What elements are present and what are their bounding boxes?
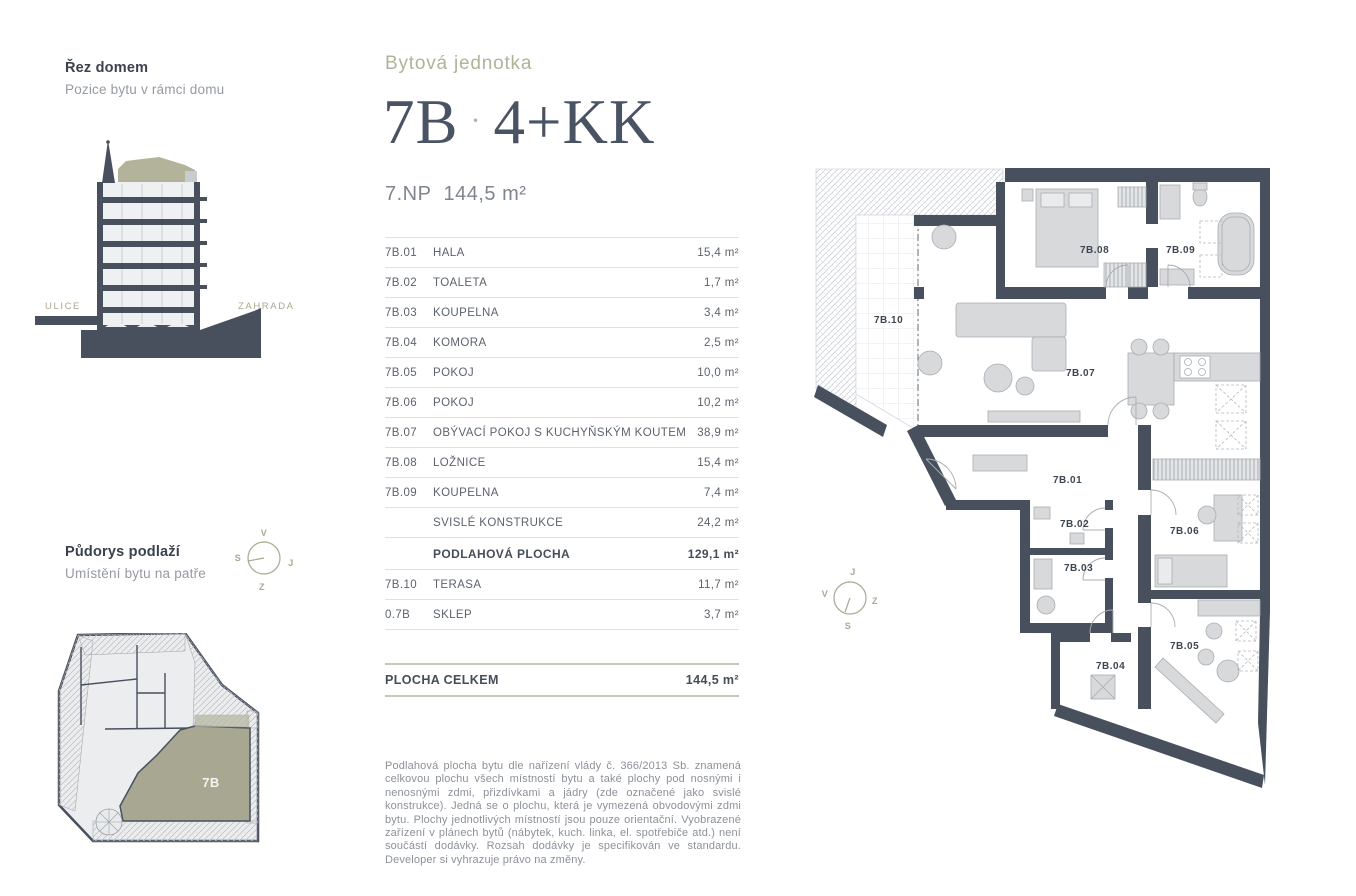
floor-panel-title: Půdorys podlaží [65,544,180,560]
room-name: SKLEP [433,609,704,621]
table-row: 7B.02TOALETA1,7 m² [385,268,739,298]
room-code: 7B.07 [385,427,433,439]
room-code: 7B.10 [385,579,433,591]
table-row: 7B.08LOŽNICE15,4 m² [385,448,739,478]
room-code: 7B.08 [385,457,433,469]
room-code: 7B.04 [385,337,433,349]
table-row: 7B.06POKOJ10,2 m² [385,388,739,418]
room-name: KOUPELNA [433,307,704,319]
label-bathroom2: 7B.09 [1166,245,1195,256]
room-code: 7B.06 [385,397,433,409]
room-name: HALA [433,247,697,259]
table-row: SVISLÉ KONSTRUKCE24,2 m² [385,508,739,538]
armchair [1217,660,1239,682]
plan-compass-left: V [822,589,829,599]
room-name: SVISLÉ KONSTRUKCE [433,517,697,529]
room-area: 3,4 m² [704,307,739,319]
floor-location-plan: 7B [45,633,275,868]
label-hall: 7B.01 [1053,475,1082,486]
hall-cabinet [973,455,1027,471]
bath-vanity [1160,185,1180,219]
room-area: 38,9 m² [697,427,739,439]
room-name: TERASA [433,579,698,591]
spire [102,140,115,183]
floor-panel-subtitle: Umístění bytu na patře [65,566,206,581]
section-panel-subtitle: Pozice bytu v rámci domu [65,82,224,97]
total-area: 144,5 m² [686,673,739,687]
room-name: TOALETA [433,277,704,289]
label-bathroom1: 7B.03 [1064,563,1093,574]
room-code: 7B.05 [385,367,433,379]
room-code: 7B.09 [385,487,433,499]
floor-compass: V S J Z [230,524,302,598]
unit-subheader: 7.NP144,5 m² [385,183,526,206]
room-area: 7,4 m² [704,487,739,499]
stove [1180,356,1210,378]
table-row: 7B.03KOUPELNA3,4 m² [385,298,739,328]
label-storage: 7B.04 [1096,661,1125,672]
compass-bottom-label: Z [259,582,265,592]
table-row: 7B.05POKOJ10,0 m² [385,358,739,388]
room-name: OBÝVACÍ POKOJ S KUCHYŇSKÝM KOUTEM [433,427,697,439]
armchair [932,225,956,249]
room-area: 10,2 m² [697,397,739,409]
compass-top-label: V [261,528,268,538]
room-name: KOUPELNA [433,487,704,499]
room-area: 2,5 m² [704,337,739,349]
room-name: POKOJ [433,397,697,409]
mini-plan-unit-label: 7B [202,775,220,790]
main-floor-plan: 7B.10 7B.08 7B.09 7B.07 7B.01 7B.02 7B.0… [808,163,1300,888]
room-area: 15,4 m² [697,457,739,469]
label-room2: 7B.06 [1170,526,1199,537]
bath-sink [1034,559,1052,589]
room-area: 24,2 m² [697,517,739,529]
table-row: 0.7BSKLEP3,7 m² [385,600,739,630]
total-row: PLOCHA CELKEM 144,5 m² [385,663,739,697]
sideboard [988,411,1080,422]
sofa [956,303,1066,337]
unit-eyebrow: Bytová jednotka [385,53,532,75]
armchair [918,351,942,375]
label-bedroom: 7B.08 [1080,245,1109,256]
toilet [1193,188,1207,206]
label-toilet: 7B.02 [1060,519,1089,530]
wc-sink [1034,507,1050,519]
shelf [1198,600,1260,616]
table-row: 7B.01HALA15,4 m² [385,237,739,268]
unit-floor: 7.NP [385,183,431,205]
built-in-wardrobe [1153,459,1260,480]
room-code: 7B.01 [385,247,433,259]
street-label: ULICE [45,301,81,312]
label-room1: 7B.05 [1170,641,1199,652]
total-label: PLOCHA CELKEM [385,673,499,687]
plan-compass-top: J [850,567,856,577]
plan-compass-right: Z [872,596,878,606]
building-section-drawing: ULICE ZAHRADA [30,140,315,375]
unit-id: 7B [383,87,459,157]
table-row: PODLAHOVÁ PLOCHA129,1 m² [385,538,739,570]
room-area: 11,7 m² [698,579,739,591]
table-row: 7B.10TERASA11,7 m² [385,570,739,600]
table-row: 7B.04KOMORA2,5 m² [385,328,739,358]
room-code: 7B.03 [385,307,433,319]
compass-left-label: S [235,553,242,563]
room-code: 0.7B [385,609,433,621]
unit-area: 144,5 m² [443,183,526,205]
page: Řez domem Pozice bytu v rámci domu [0,0,1356,896]
unit-title: 7B·4+KK [383,86,656,159]
room-area: 10,0 m² [697,367,739,379]
desk [1214,495,1242,541]
disclaimer-text: Podlahová plocha bytu dle nařízení vlády… [385,760,741,867]
rooms-table: 7B.01HALA15,4 m²7B.02TOALETA1,7 m²7B.03K… [385,237,739,630]
room-name: POKOJ [433,367,697,379]
room-area: 1,7 m² [704,277,739,289]
table-row: 7B.07OBÝVACÍ POKOJ S KUCHYŇSKÝM KOUTEM38… [385,418,739,448]
title-dot: · [471,104,482,137]
wardrobe [1118,187,1146,207]
plan-compass: J V Z S [822,567,878,631]
garden-label: ZAHRADA [238,301,295,312]
room-area: 3,7 m² [704,609,739,621]
room-area: 15,4 m² [697,247,739,259]
room-name: PODLAHOVÁ PLOCHA [433,547,688,561]
section-building [97,140,207,328]
room-area: 129,1 m² [688,547,739,561]
label-living: 7B.07 [1066,368,1095,379]
table-row: 7B.09KOUPELNA7,4 m² [385,478,739,508]
coffee-table [984,364,1012,392]
plan-compass-bottom: S [845,621,852,631]
stairs [1104,263,1146,287]
rooms-table-body: 7B.01HALA15,4 m²7B.02TOALETA1,7 m²7B.03K… [385,237,739,630]
section-panel-title: Řez domem [65,60,148,76]
label-terrace: 7B.10 [874,315,903,326]
room-code: 7B.02 [385,277,433,289]
washer [1037,596,1055,614]
room-name: KOMORA [433,337,704,349]
unit-layout: 4+KK [494,87,656,157]
compass-right-label: J [288,558,294,568]
room-name: LOŽNICE [433,457,697,469]
highlighted-unit-attic [118,157,195,182]
